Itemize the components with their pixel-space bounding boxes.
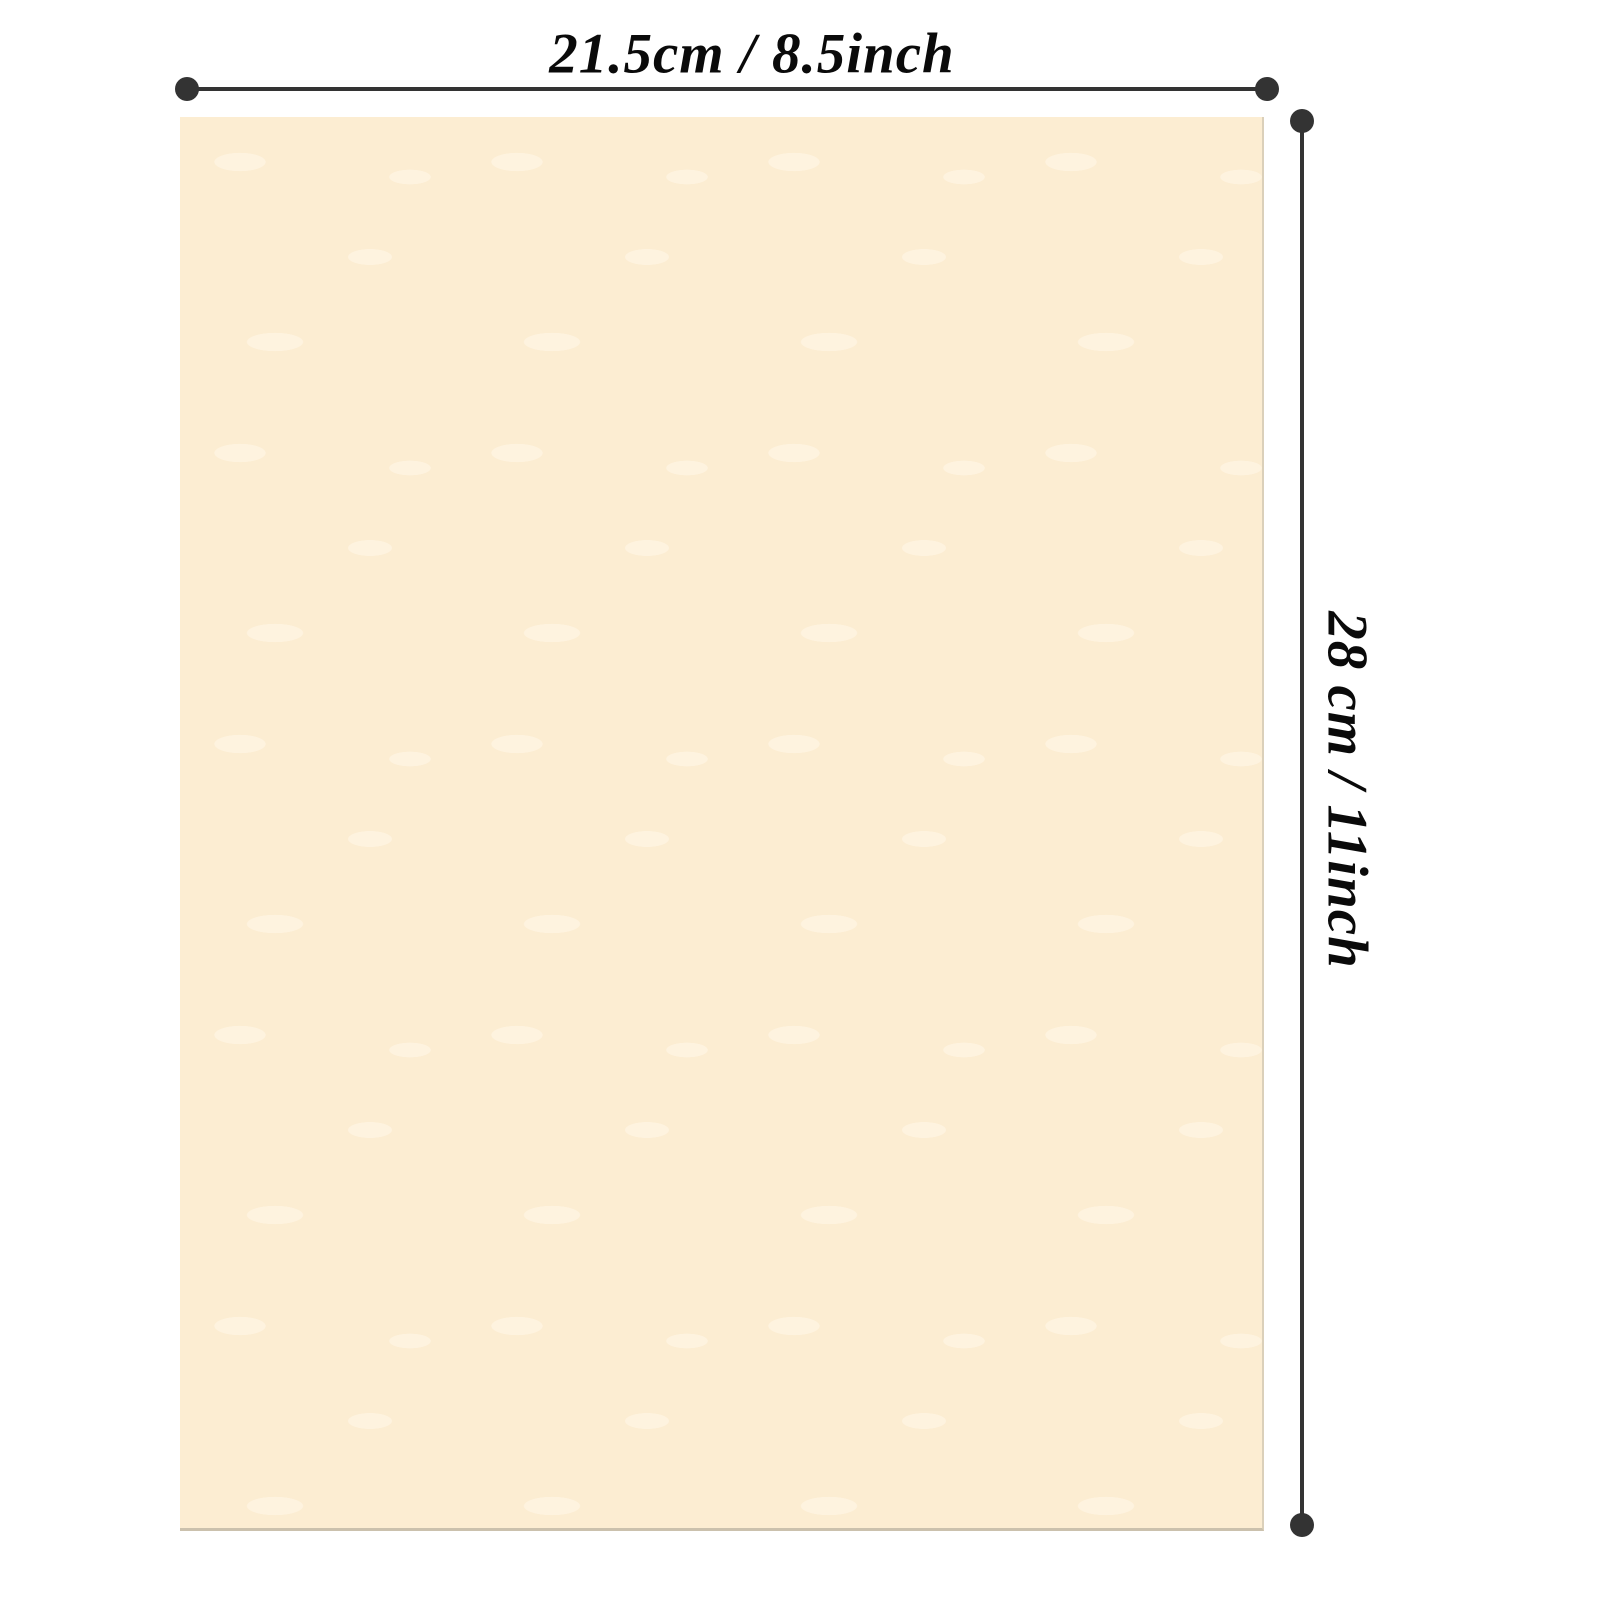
height-endpoint-top-dot-icon xyxy=(1290,109,1314,133)
width-endpoint-right-dot-icon xyxy=(1255,77,1279,101)
product-dimension-diagram: 21.5cm / 8.5inch 28 cm / 11inch xyxy=(0,0,1600,1600)
paper-sheet xyxy=(180,117,1264,1531)
height-dimension-line xyxy=(1300,121,1304,1525)
width-endpoint-left-dot-icon xyxy=(175,77,199,101)
width-dimension-line xyxy=(187,87,1267,91)
height-dimension-label: 28 cm / 11inch xyxy=(1315,611,1380,969)
width-dimension-label: 21.5cm / 8.5inch xyxy=(549,22,955,87)
height-endpoint-bottom-dot-icon xyxy=(1290,1513,1314,1537)
